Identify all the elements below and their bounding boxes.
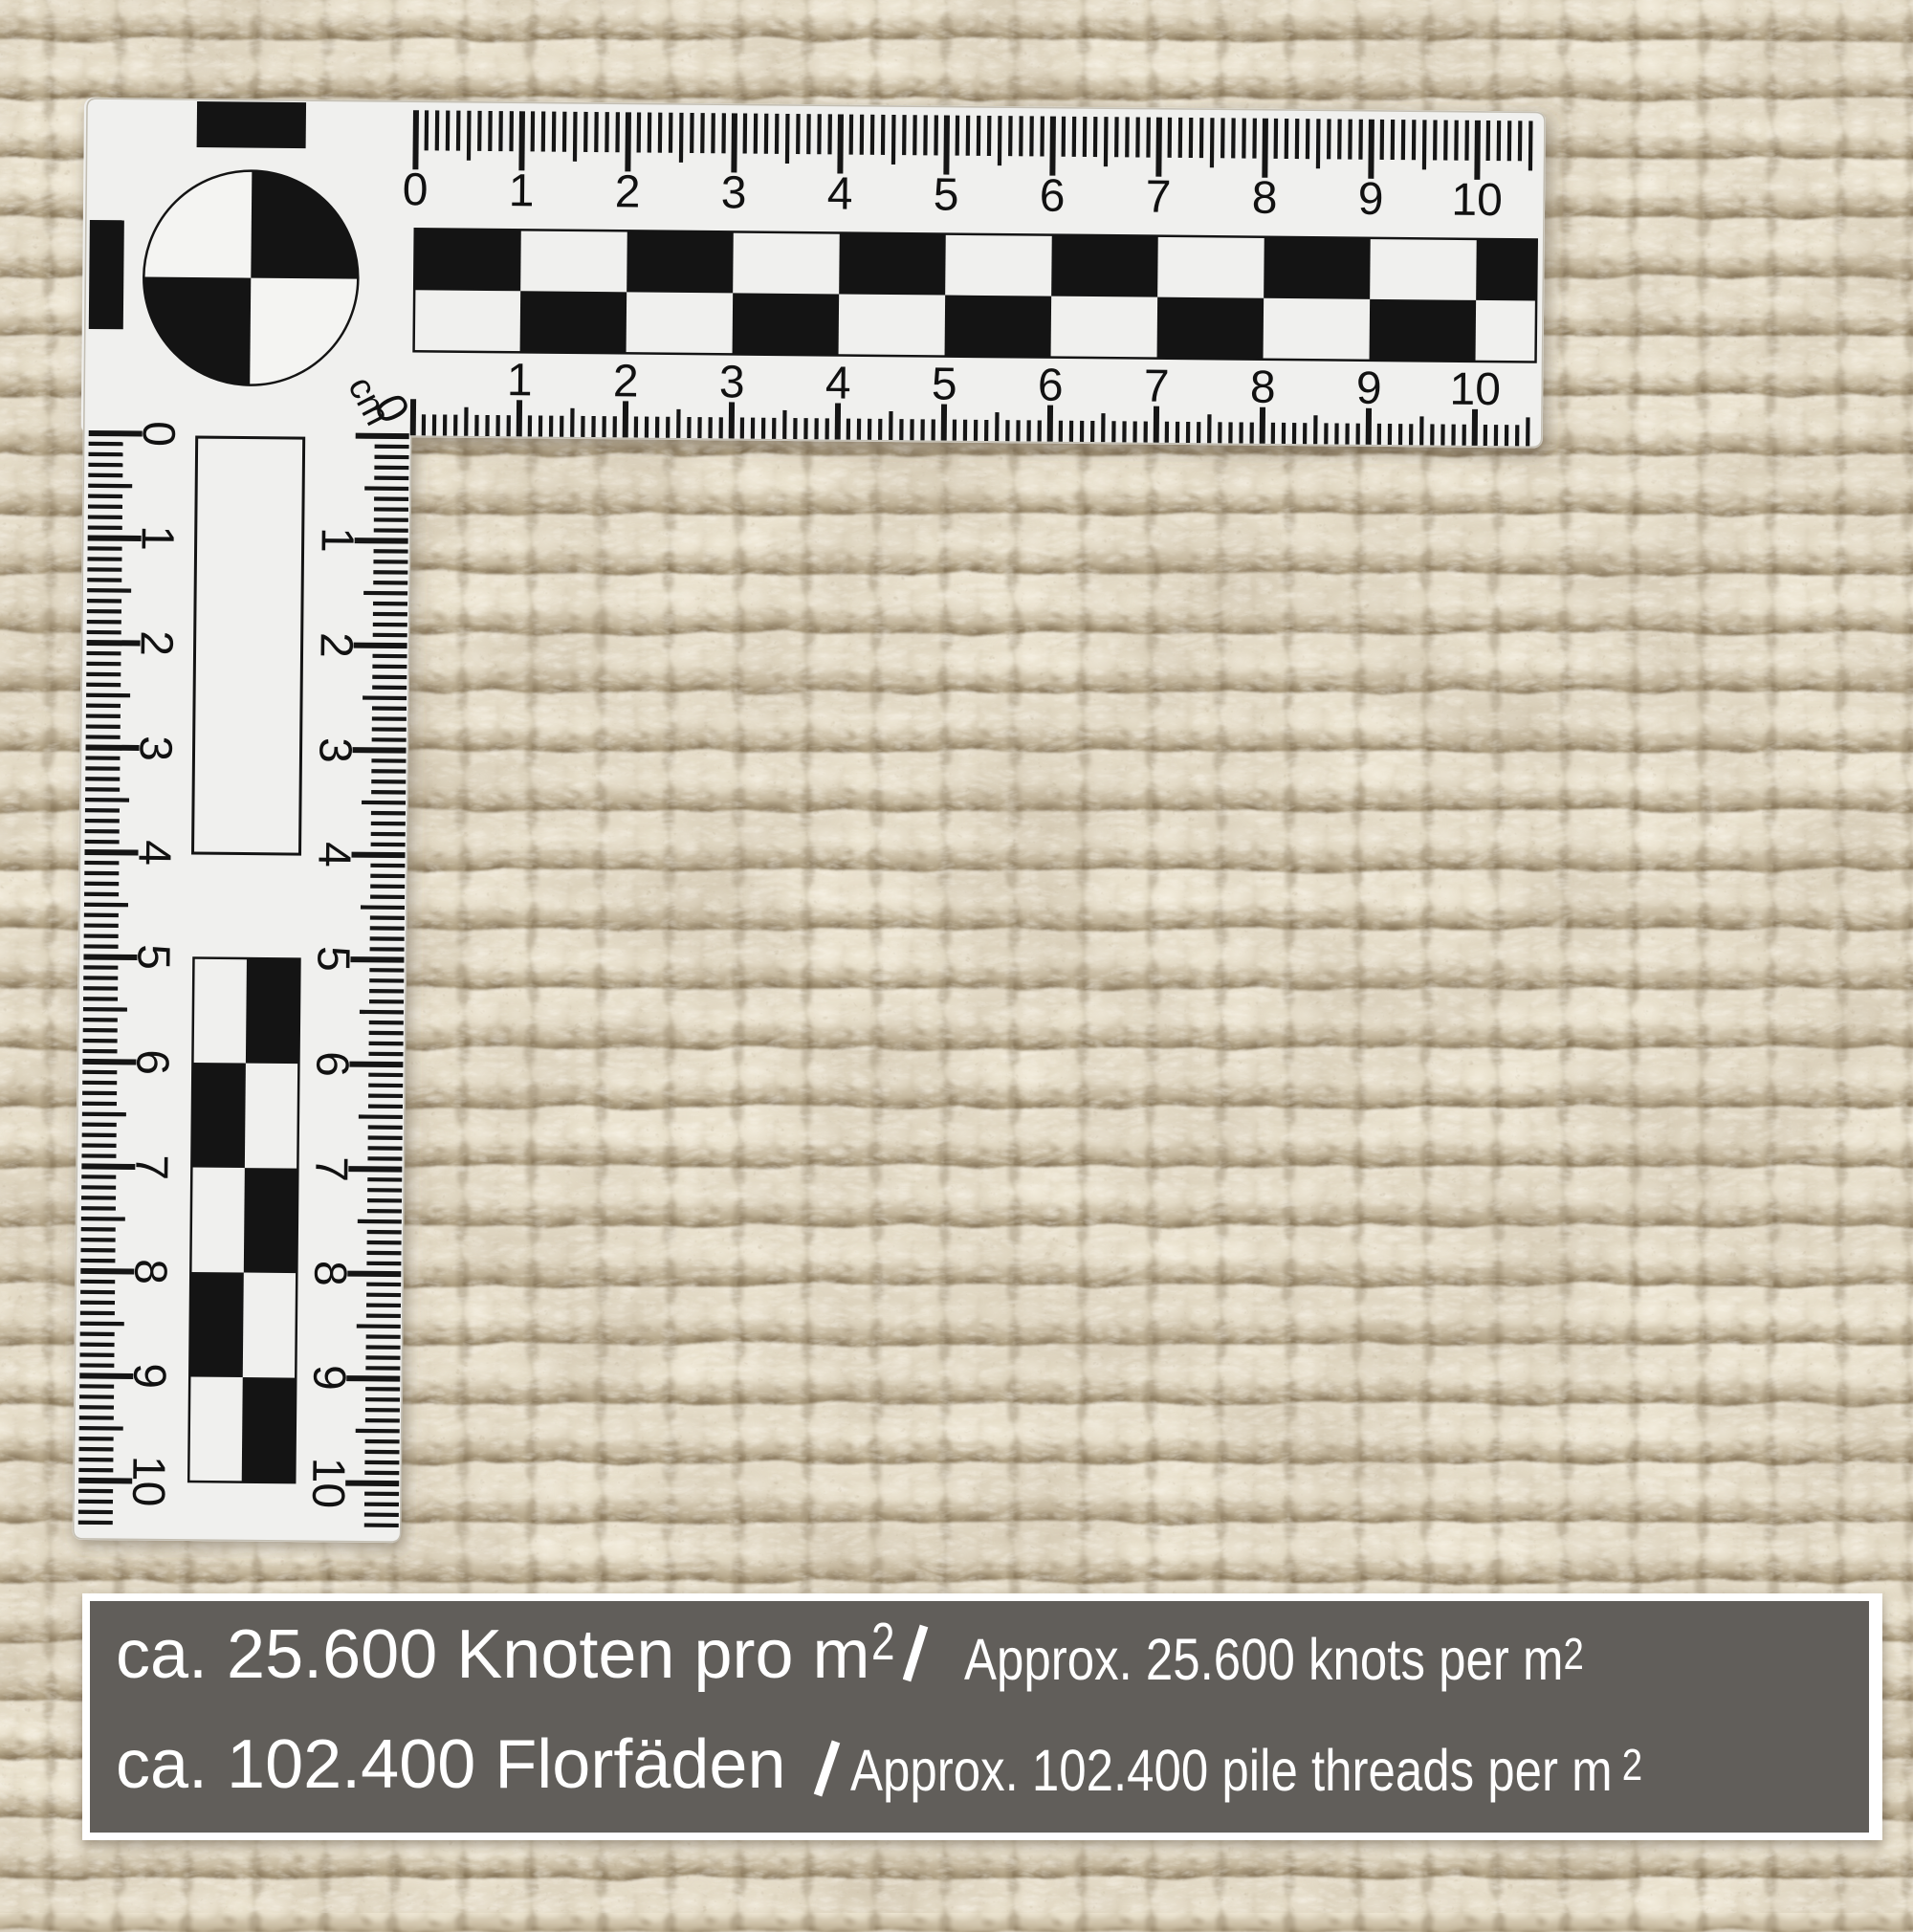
svg-text:2: 2 bbox=[130, 630, 181, 656]
svg-text:9: 9 bbox=[123, 1363, 174, 1389]
svg-text:7: 7 bbox=[1144, 362, 1170, 412]
svg-text:7: 7 bbox=[305, 1156, 356, 1182]
svg-text:10: 10 bbox=[1451, 175, 1503, 227]
svg-text:9: 9 bbox=[1356, 363, 1382, 414]
svg-text:4: 4 bbox=[825, 358, 851, 408]
svg-text:9: 9 bbox=[1358, 174, 1384, 225]
svg-text:8: 8 bbox=[1250, 362, 1276, 413]
svg-text:9: 9 bbox=[303, 1365, 354, 1391]
svg-text:10: 10 bbox=[302, 1457, 354, 1508]
svg-text:6: 6 bbox=[1040, 170, 1066, 221]
svg-text:4: 4 bbox=[827, 168, 853, 219]
svg-text:6: 6 bbox=[1038, 360, 1064, 410]
svg-text:2: 2 bbox=[613, 356, 639, 406]
svg-text:4: 4 bbox=[308, 842, 359, 867]
svg-text:5: 5 bbox=[127, 944, 178, 970]
svg-text:6: 6 bbox=[126, 1049, 177, 1075]
svg-text:1: 1 bbox=[509, 165, 535, 216]
svg-text:5: 5 bbox=[932, 359, 957, 409]
svg-text:5: 5 bbox=[934, 169, 959, 220]
svg-text:5: 5 bbox=[307, 946, 358, 972]
svg-text:3: 3 bbox=[719, 357, 745, 407]
svg-text:8: 8 bbox=[304, 1261, 355, 1286]
svg-text:2: 2 bbox=[310, 632, 361, 658]
svg-text:3: 3 bbox=[721, 167, 747, 218]
svg-text:7: 7 bbox=[1146, 172, 1172, 223]
svg-text:4: 4 bbox=[128, 840, 179, 866]
svg-text:1: 1 bbox=[312, 527, 363, 553]
svg-text:3: 3 bbox=[309, 737, 360, 763]
svg-text:8: 8 bbox=[1252, 173, 1278, 224]
svg-text:3: 3 bbox=[129, 735, 180, 761]
svg-text:0: 0 bbox=[403, 165, 429, 215]
svg-text:10: 10 bbox=[122, 1456, 174, 1507]
svg-text:0: 0 bbox=[133, 421, 184, 447]
svg-text:7: 7 bbox=[125, 1154, 176, 1180]
svg-text:6: 6 bbox=[306, 1051, 357, 1077]
svg-text:8: 8 bbox=[124, 1259, 175, 1284]
svg-text:10: 10 bbox=[1449, 364, 1501, 416]
svg-text:1: 1 bbox=[132, 525, 183, 551]
svg-text:1: 1 bbox=[507, 355, 533, 406]
svg-text:2: 2 bbox=[615, 166, 641, 217]
